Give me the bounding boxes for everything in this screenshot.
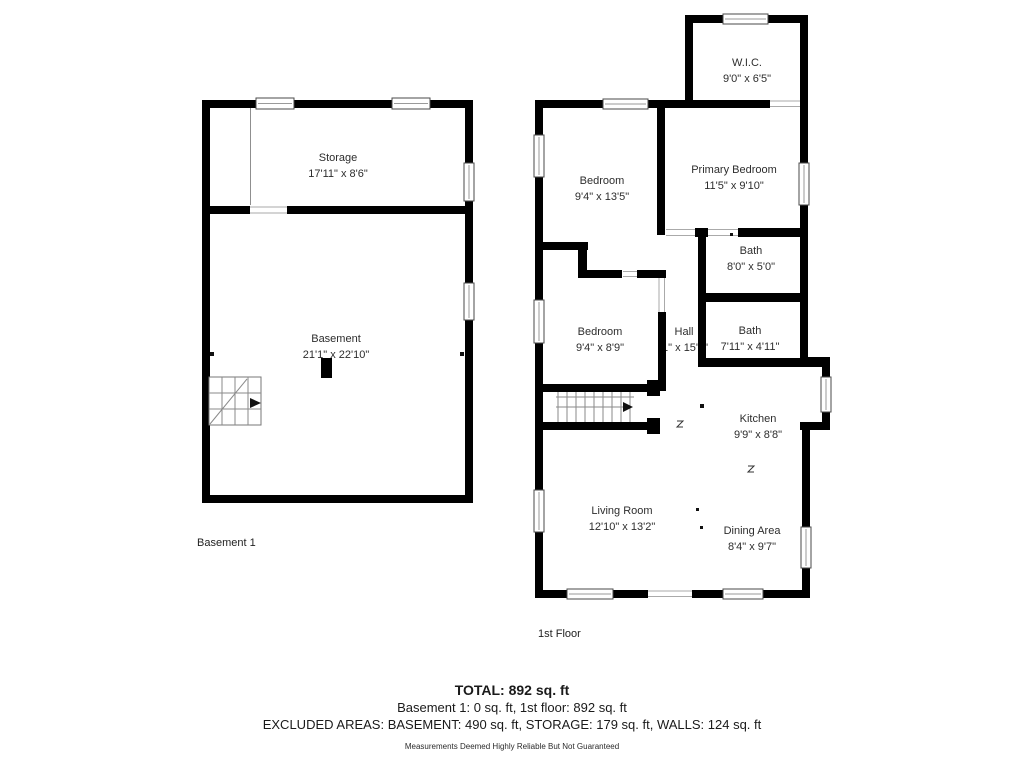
- wall: [535, 422, 647, 430]
- wall: [535, 242, 588, 250]
- window: [464, 283, 474, 320]
- door-tick: [730, 233, 733, 236]
- floor-label-basement: Basement 1: [197, 537, 256, 549]
- door-swing-mark: [748, 466, 754, 472]
- window: [534, 135, 544, 177]
- wall: [637, 270, 666, 278]
- wall: [202, 206, 473, 214]
- window: [801, 527, 811, 568]
- wall: [647, 418, 660, 434]
- wall: [586, 270, 622, 278]
- square-footage-summary: TOTAL: 892 sq. ft Basement 1: 0 sq. ft, …: [0, 681, 1024, 752]
- wall: [698, 358, 830, 367]
- wall: [698, 293, 803, 302]
- summary-floor-totals: Basement 1: 0 sq. ft, 1st floor: 892 sq.…: [0, 699, 1024, 716]
- basement-plan: [202, 98, 474, 503]
- wall: [695, 228, 708, 237]
- window: [464, 163, 474, 201]
- window: [567, 589, 613, 599]
- wall: [202, 100, 210, 503]
- window: [821, 377, 831, 412]
- wall: [537, 100, 770, 108]
- floor-plan-drawing: [0, 0, 1024, 768]
- door-opening: [666, 230, 695, 236]
- door-opening: [708, 230, 738, 236]
- door-tick: [700, 404, 704, 408]
- wall: [578, 250, 587, 278]
- floor-plan-page: Storage 17'11" x 8'6" Basement 21'1" x 2…: [0, 0, 1024, 768]
- door-tick: [696, 508, 699, 511]
- door-tick: [460, 352, 464, 356]
- wall: [202, 495, 473, 503]
- wall: [685, 15, 693, 100]
- front-door-opening: [648, 589, 692, 599]
- window: [723, 14, 768, 24]
- first-floor-plan: [534, 14, 831, 599]
- door-tick: [210, 352, 214, 356]
- first-floor-stairs: [556, 392, 634, 422]
- door-opening: [659, 278, 665, 312]
- wall: [535, 384, 647, 392]
- window: [723, 589, 763, 599]
- window: [392, 98, 430, 109]
- wall: [658, 312, 666, 391]
- floor-label-first-floor: 1st Floor: [538, 628, 581, 640]
- window: [256, 98, 294, 109]
- window: [603, 99, 648, 109]
- door-opening: [770, 99, 800, 109]
- basement-stairs: [209, 377, 261, 425]
- summary-total: TOTAL: 892 sq. ft: [0, 681, 1024, 699]
- summary-disclaimer: Measurements Deemed Highly Reliable But …: [0, 742, 1024, 752]
- window: [534, 490, 544, 532]
- summary-excluded-areas: EXCLUDED AREAS: BASEMENT: 490 sq. ft, ST…: [0, 716, 1024, 733]
- wall: [802, 422, 810, 598]
- wall: [657, 100, 665, 235]
- wall: [202, 100, 473, 108]
- wall: [738, 228, 803, 237]
- window: [534, 300, 544, 343]
- support-column: [321, 358, 332, 378]
- door-tick: [700, 526, 703, 529]
- door-swing-mark: [677, 421, 683, 427]
- stairs-direction-arrow: [623, 402, 633, 412]
- door-opening: [623, 272, 637, 277]
- wall: [647, 380, 660, 396]
- window: [799, 163, 809, 205]
